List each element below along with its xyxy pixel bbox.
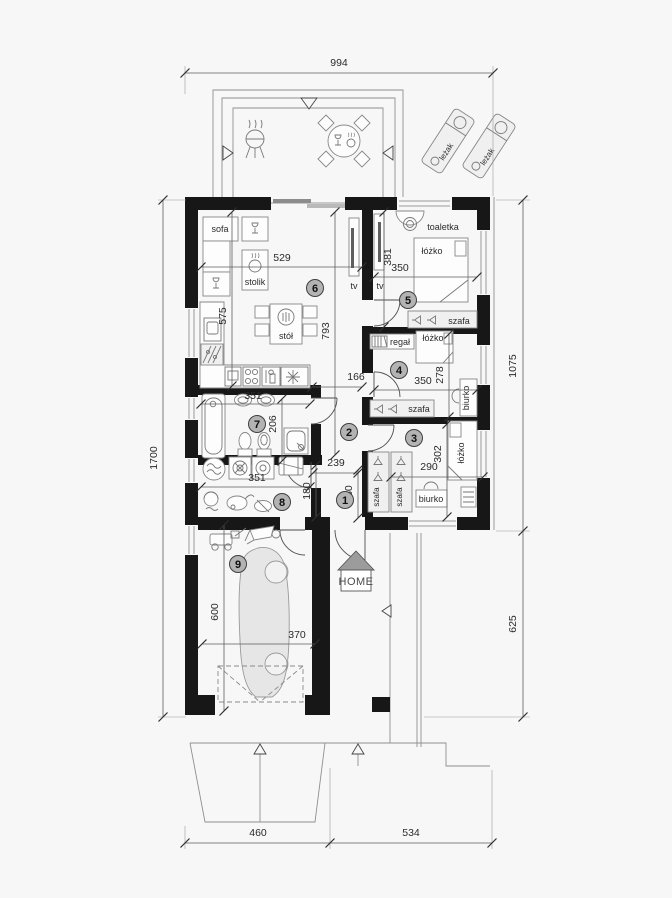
wall — [365, 517, 408, 530]
toilet-icon — [238, 433, 252, 457]
home-logo: HOME — [338, 551, 374, 591]
room-badge-1: 1 — [337, 492, 354, 509]
driveway-arrow-icon — [254, 744, 266, 754]
door-garage-inner — [280, 530, 305, 555]
wall — [477, 197, 490, 230]
home-logo-roof-icon — [338, 551, 374, 570]
dim-hall-opening: 166 — [347, 371, 365, 383]
dim-bottom-garage: 460 — [249, 827, 267, 839]
room-badge-7: 7 — [249, 416, 266, 433]
room-badge-2: 2 — [341, 424, 358, 441]
window — [185, 308, 198, 358]
tv-label: tv — [350, 281, 358, 291]
wall — [477, 385, 490, 430]
svg-text:2: 2 — [346, 427, 352, 439]
svg-text:7: 7 — [254, 419, 260, 431]
patio-table-icon — [318, 115, 370, 167]
dim-bed3-width: 290 — [420, 461, 438, 473]
desk-chair-icon — [452, 389, 459, 403]
dim-living-depth-right: 793 — [320, 322, 332, 340]
terrace-side-arrow-left-icon — [223, 146, 233, 160]
tv-label: tv — [376, 281, 384, 291]
dining-chair — [255, 324, 269, 336]
dim-garage-depth: 600 — [209, 603, 221, 621]
garage-pier — [190, 695, 215, 715]
coffee-table-label: stolik — [245, 277, 266, 287]
wall — [477, 295, 490, 345]
closet: szafa — [391, 452, 412, 512]
window — [477, 230, 490, 295]
window — [477, 430, 490, 478]
garage-pier — [305, 695, 330, 715]
room-badge-8: 8 — [274, 494, 291, 511]
vanity-mirror-icon — [396, 211, 424, 231]
svg-text:6: 6 — [312, 283, 318, 295]
door-bedroom-5 — [374, 300, 400, 326]
bedroom-5 — [374, 211, 477, 328]
door-bedroom-3 — [368, 425, 394, 451]
fridge-icon — [201, 344, 223, 365]
lawn-mower-icon — [210, 528, 246, 550]
pillow — [450, 423, 461, 437]
svg-text:1: 1 — [342, 495, 348, 507]
pillow — [455, 241, 466, 256]
svg-text:3: 3 — [411, 433, 417, 445]
svg-text:9: 9 — [235, 559, 241, 571]
terrace-outline-mid — [222, 98, 395, 197]
dim-right-upper: 1075 — [507, 354, 519, 378]
desk-chair-icon — [424, 482, 438, 489]
floor-plan-page: leżak leżak — [0, 0, 672, 898]
sofa-label: sofa — [211, 224, 228, 234]
bookshelf-label: regał — [390, 337, 410, 347]
floor-polisher-icon — [255, 500, 272, 512]
room-badge-6: 6 — [307, 280, 324, 297]
wall — [185, 555, 198, 715]
dim-utility-width: 351 — [248, 472, 266, 484]
dresser-icon — [461, 487, 476, 507]
floor-plan-drawing: leżak leżak — [0, 0, 672, 898]
dim-overall-width: 994 — [330, 57, 348, 69]
dim-bed5-depth: 381 — [382, 248, 394, 266]
dining-chair — [303, 306, 317, 318]
closet-label: szafa — [395, 487, 404, 507]
desk-label: biurko — [461, 386, 471, 411]
tv-icon — [378, 222, 381, 262]
desk-label: biurko — [419, 494, 444, 504]
porch-column — [372, 697, 390, 712]
wardrobe-label: szafa — [408, 404, 430, 414]
vanity-label: toaletka — [427, 222, 459, 232]
closet: szafa — [368, 452, 389, 512]
walkway-arrow-icon — [352, 744, 364, 754]
terrace-side-arrow-right-icon — [383, 146, 393, 160]
sliding-door-terrace — [271, 197, 345, 210]
dim-bath-depth: 206 — [267, 415, 279, 433]
room-badge-3: 3 — [406, 430, 423, 447]
svg-text:4: 4 — [396, 365, 403, 377]
dim-garage-width: 370 — [288, 629, 306, 641]
room-badge-4: 4 — [391, 362, 408, 379]
boiler-icon — [203, 458, 225, 480]
dim-living-width: 529 — [273, 252, 291, 264]
room-badge-9: 9 — [230, 556, 247, 573]
dim-entry-width: 239 — [327, 457, 345, 469]
wall — [185, 420, 198, 458]
bidet-icon — [257, 433, 271, 457]
bed-label: łóżko — [421, 246, 442, 256]
tv-icon — [351, 228, 354, 268]
dining-table-label: stół — [279, 331, 293, 341]
dim-bed4-depth: 278 — [434, 366, 446, 384]
terrace-entry-arrow-icon — [301, 98, 317, 109]
dining-chair — [255, 306, 269, 318]
bed-label: łóżko — [456, 442, 466, 463]
window — [185, 458, 198, 483]
wall — [457, 517, 490, 530]
driveway-outline — [190, 743, 325, 822]
window — [185, 525, 198, 555]
dim-utility-depth: 180 — [301, 482, 313, 500]
home-logo-text: HOME — [339, 576, 374, 588]
dim-bed4-width: 350 — [414, 375, 432, 387]
dining-chair — [303, 324, 317, 336]
bucket-icon — [204, 492, 218, 511]
window — [185, 397, 198, 420]
dim-living-depth-left: 575 — [217, 307, 229, 325]
side-table — [203, 272, 230, 296]
door-bathroom — [311, 398, 337, 424]
wall — [311, 424, 321, 455]
shower-icon — [284, 428, 308, 454]
dim-overall-depth: 1700 — [148, 446, 160, 470]
terrace-furniture: leżak leżak — [246, 108, 516, 180]
dim-bath-width: 351 — [244, 390, 262, 402]
wall — [312, 517, 330, 697]
dim-right-lower: 625 — [507, 615, 519, 633]
car — [239, 548, 289, 697]
wall — [345, 197, 397, 210]
svg-text:8: 8 — [279, 497, 285, 509]
wall — [362, 210, 373, 300]
walkway-outline — [190, 743, 490, 766]
porch-arrow-icon — [382, 605, 391, 617]
vacuum-icon — [227, 495, 254, 510]
window — [397, 197, 452, 210]
window — [408, 517, 457, 530]
wardrobe-label: szafa — [448, 316, 470, 326]
bed-label: łóżko — [422, 333, 443, 343]
room-badge-5: 5 — [400, 292, 417, 309]
grill-icon — [246, 120, 264, 158]
dim-bottom-right: 534 — [402, 827, 420, 839]
svg-text:5: 5 — [405, 295, 411, 307]
closet-label: szafa — [372, 487, 381, 507]
window — [477, 345, 490, 385]
wall — [185, 197, 198, 308]
